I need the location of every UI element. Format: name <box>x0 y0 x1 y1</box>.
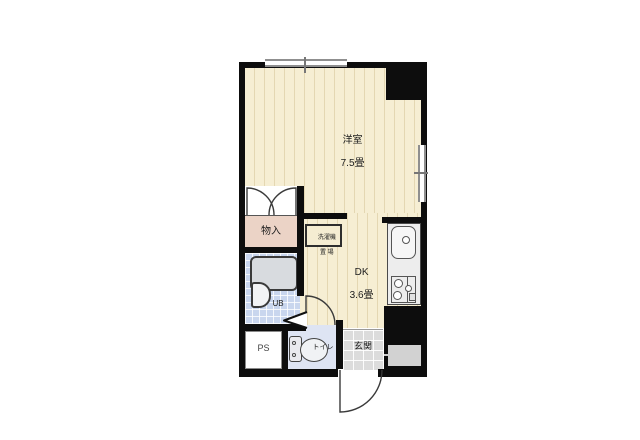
label-yoshitsu: 洋室 7.5畳 <box>322 123 372 181</box>
entrance-door-swing <box>340 370 382 412</box>
stove-burner <box>405 285 412 292</box>
window-right-mullion <box>414 172 428 174</box>
window-top <box>265 59 347 67</box>
label-toilet: トイレ <box>308 344 338 352</box>
label-genkan: 玄関 <box>343 341 383 351</box>
yoshitsu-name: 洋室 <box>343 135 363 146</box>
dk-size: 3.6畳 <box>350 290 374 301</box>
washer-line1: 洗濯機 <box>318 235 336 241</box>
wall-closet-ub <box>239 247 304 253</box>
yoshitsu-size: 7.5畳 <box>341 158 365 169</box>
toilet-tank-knob <box>292 353 296 357</box>
floorplan-canvas: 洋室 7.5畳 DK 3.6畳 物入 洗濯機 置 場 UB PS トイレ 玄関 <box>0 0 640 440</box>
toilet-tank-knob <box>292 341 296 345</box>
wall-block-top-right <box>386 62 427 100</box>
label-ub: UB <box>266 299 290 308</box>
wall-dk-top <box>297 213 347 219</box>
entry-step <box>388 345 421 366</box>
stove-burner <box>393 291 402 300</box>
label-ps: PS <box>245 343 282 353</box>
wall-block-bottom-right <box>384 306 427 377</box>
wall-closet-right <box>297 186 304 296</box>
wall-ps-toilet <box>282 324 288 369</box>
stove-burner <box>394 279 403 288</box>
window-top-mullion <box>304 57 306 73</box>
wall-bottom-left <box>239 369 338 377</box>
closet-door-swing-area <box>245 186 297 215</box>
entry-step-tick <box>384 354 390 356</box>
washer-line2: 置 場 <box>320 250 334 256</box>
label-washer: 洗濯機 置 場 <box>306 228 341 264</box>
wall-kitchen-top <box>382 217 427 223</box>
wall-bottom-right <box>378 369 427 377</box>
label-monoire: 物入 <box>245 226 297 238</box>
sink-drain <box>402 236 410 244</box>
stove-grill <box>409 293 416 301</box>
dk-name: DK <box>355 267 369 278</box>
wall-below-ub <box>239 324 306 331</box>
